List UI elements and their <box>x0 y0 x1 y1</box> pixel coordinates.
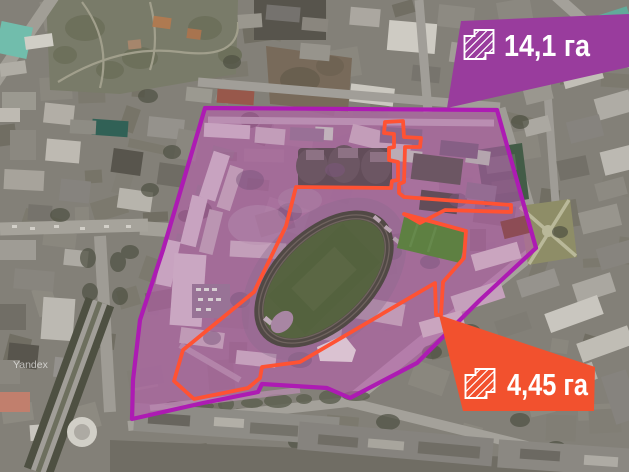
svg-text:4,45 га: 4,45 га <box>507 367 589 402</box>
svg-text:14,1 га: 14,1 га <box>504 28 591 63</box>
svg-text:Yandex: Yandex <box>13 359 49 371</box>
